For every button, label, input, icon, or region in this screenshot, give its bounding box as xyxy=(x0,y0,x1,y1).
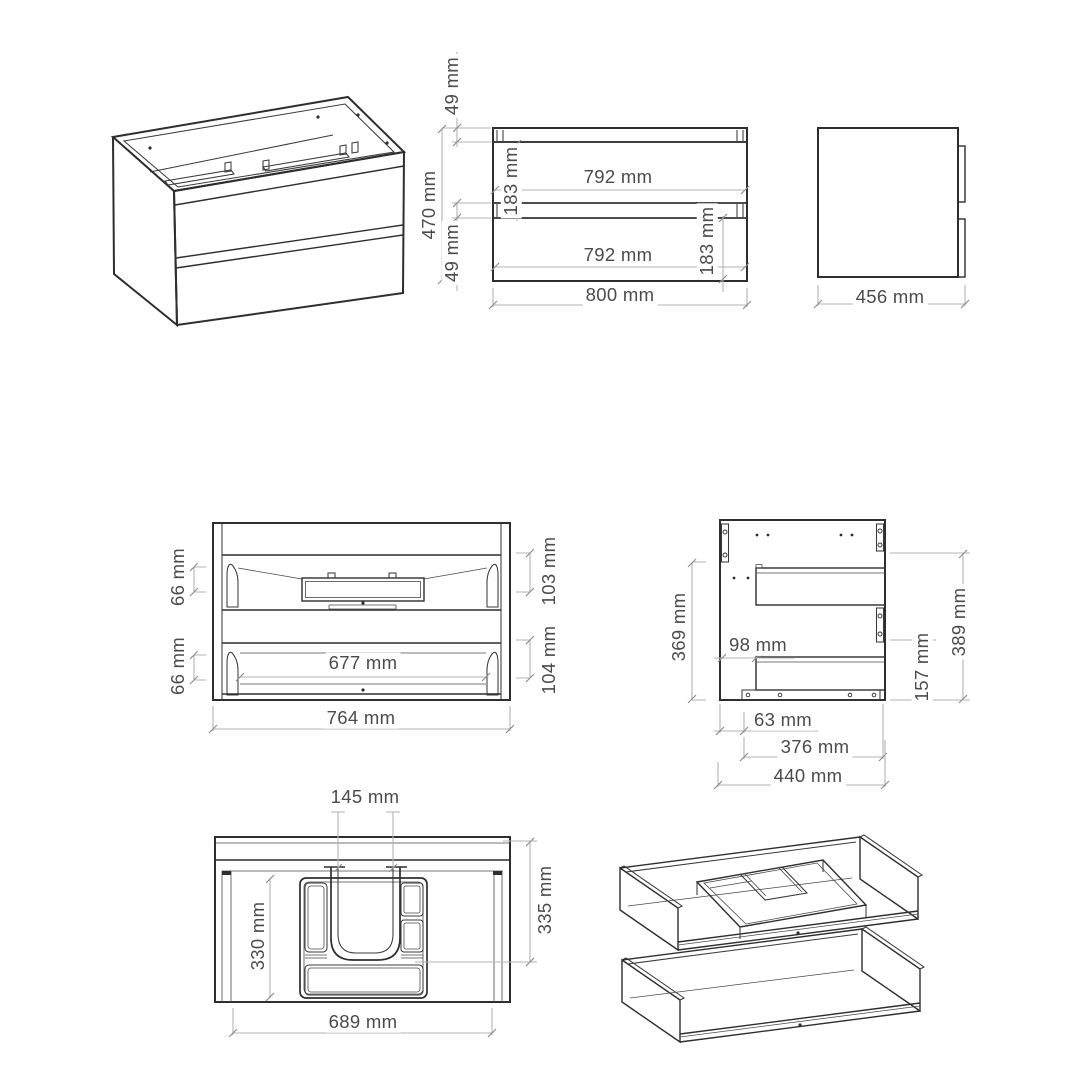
dim-rail-length: 376 mm xyxy=(778,737,853,758)
dim-top-box-side-height: 66 mm xyxy=(168,545,189,609)
dim-side-overall-depth: 456 mm xyxy=(853,287,928,308)
dim-carcass-inner-width: 764 mm xyxy=(324,708,399,729)
dim-bottom-box-side-height: 66 mm xyxy=(168,634,189,698)
dim-cutout-width: 145 mm xyxy=(328,787,403,808)
dim-right-panel-height: 389 mm xyxy=(949,585,970,660)
dim-drawer-depth: 335 mm xyxy=(535,863,556,938)
isometric-drawers-view xyxy=(620,835,924,1042)
dim-top-front-width: 792 mm xyxy=(581,167,656,188)
dim-bottom-front-width: 792 mm xyxy=(581,245,656,266)
dim-bottom-drawer-height: 104 mm xyxy=(539,623,560,698)
dim-top-drawer-height: 103 mm xyxy=(539,534,560,609)
dim-front-overall-height: 470 mm xyxy=(419,168,440,243)
dim-bottom-front-height: 183 mm xyxy=(697,204,718,279)
dim-top-front-height: 183 mm xyxy=(501,144,522,219)
dim-left-panel-height: 369 mm xyxy=(669,590,690,665)
dim-front-top-rail: 49 mm xyxy=(442,54,463,118)
dim-rail-setback: 98 mm xyxy=(726,635,790,656)
dim-drawer-inner-width: 677 mm xyxy=(326,653,401,674)
dim-lower-rail-height: 157 mm xyxy=(912,630,933,705)
dim-front-middle-gap: 49 mm xyxy=(442,221,463,285)
dim-plan-inner-width: 689 mm xyxy=(326,1012,401,1033)
technical-drawing-canvas: 49 mm 470 mm 49 mm 183 mm 792 mm 792 mm … xyxy=(0,0,1087,1087)
side-elevation-view xyxy=(814,128,969,308)
dim-front-offset: 63 mm xyxy=(751,710,815,731)
dim-front-overall-width: 800 mm xyxy=(583,285,658,306)
isometric-cabinet-view xyxy=(113,97,404,325)
dim-inner-depth: 330 mm xyxy=(248,899,269,974)
dim-panel-depth: 440 mm xyxy=(771,766,846,787)
front-section-view xyxy=(190,523,534,733)
